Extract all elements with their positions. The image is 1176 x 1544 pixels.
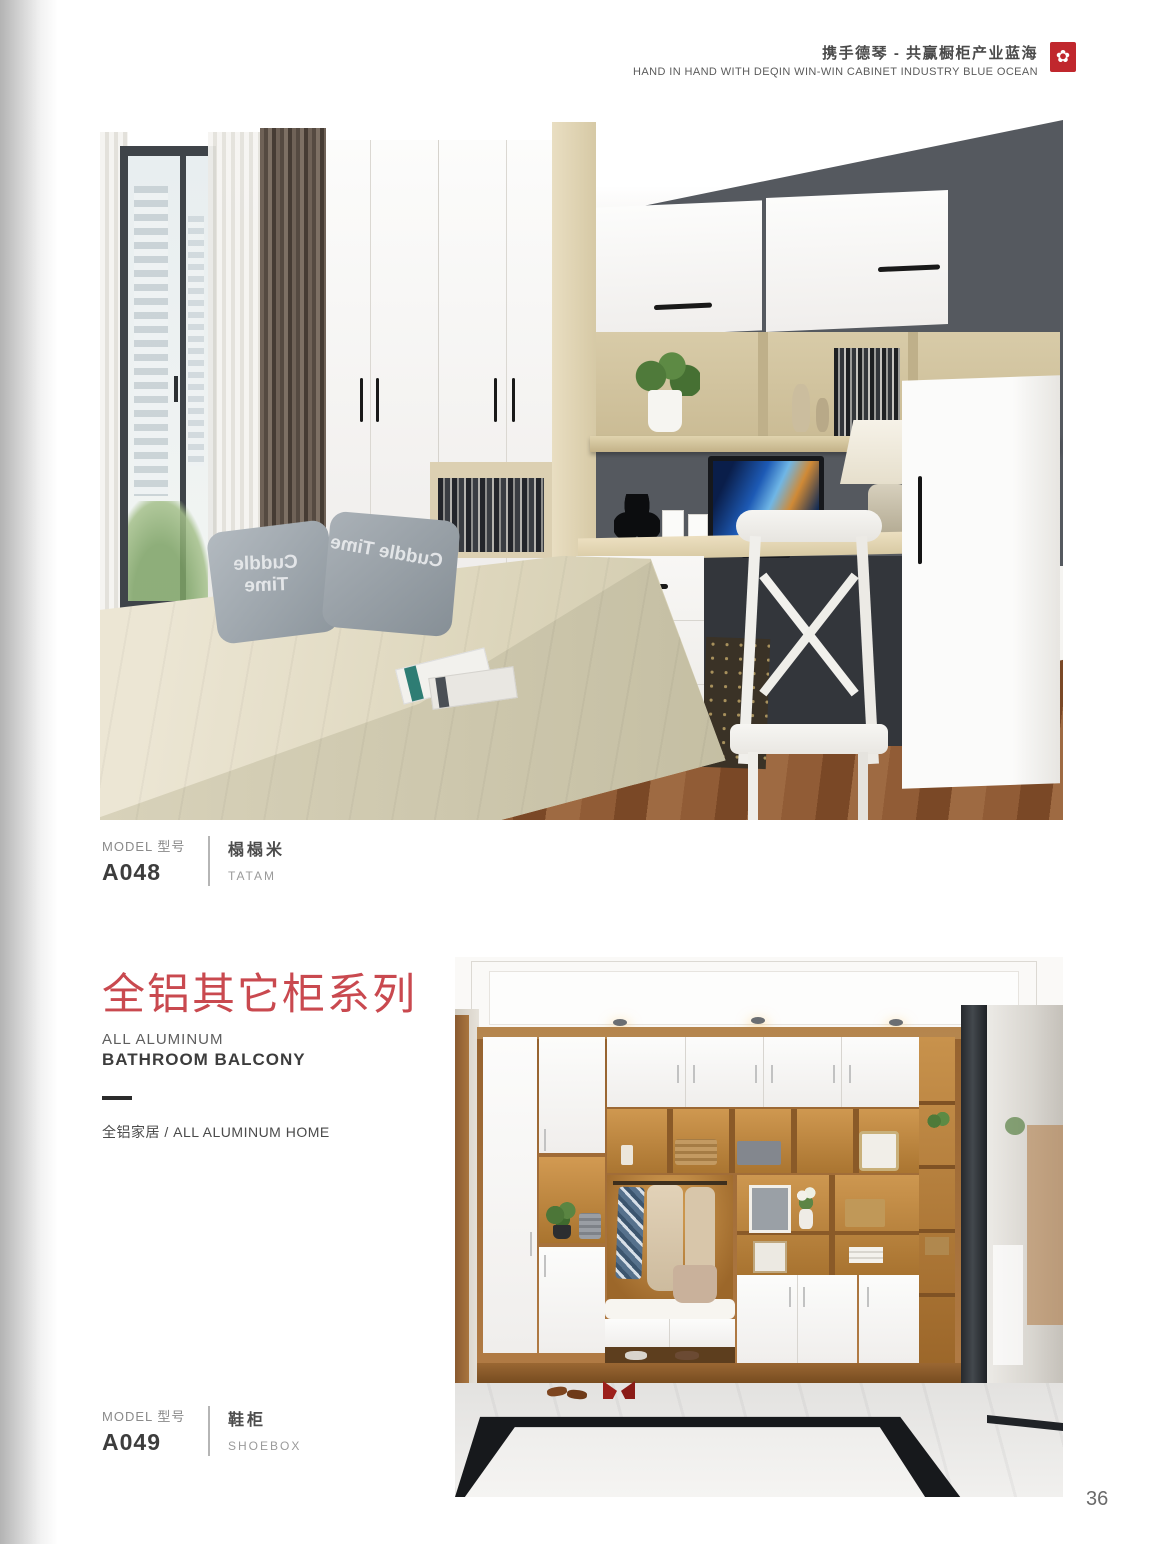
- window-frame: [120, 146, 216, 611]
- door-handle: [544, 1255, 546, 1277]
- far-right-lower-door: [859, 1275, 919, 1363]
- model-name-en: TATAM: [228, 869, 285, 883]
- shelf-divider-h: [919, 1101, 955, 1105]
- pillow: Cuddle Time: [321, 511, 461, 638]
- cubby-row: [607, 1109, 919, 1173]
- model-name-en: SHOEBOX: [228, 1439, 301, 1453]
- door-handle: [803, 1287, 805, 1307]
- door-handle: [867, 1287, 869, 1307]
- base-strip: [477, 1363, 961, 1383]
- slippers: [625, 1351, 647, 1360]
- model-divider: [208, 836, 210, 886]
- pillow-text: Cuddle Time: [327, 532, 446, 574]
- page-spine-gradient: [0, 0, 58, 1544]
- door-seam: [685, 1037, 686, 1107]
- woven-basket: [675, 1139, 717, 1165]
- tall-cabinet: [902, 375, 1060, 789]
- photo-tatami-room: Cuddle Time Cuddle Time: [100, 106, 1063, 820]
- shelf-plant: [545, 1197, 579, 1227]
- shelf-basket: [579, 1213, 601, 1239]
- chair-leg: [748, 752, 758, 820]
- small-box: [925, 1237, 949, 1255]
- bench-cushion: [605, 1299, 735, 1319]
- top-cabinet-left: [596, 200, 762, 337]
- gray-box: [737, 1141, 781, 1165]
- greenery-view: [128, 501, 208, 601]
- upper-door: [539, 1037, 605, 1153]
- buildings-view-2: [188, 216, 204, 466]
- page-number: 36: [1086, 1488, 1108, 1511]
- flower-bouquet: [793, 1183, 819, 1211]
- shelf-divider-h: [919, 1229, 955, 1233]
- lit-shelf: [539, 1157, 605, 1243]
- pillow-text: Cuddle Time: [210, 551, 321, 598]
- door-handle: [789, 1287, 791, 1307]
- downlight: [751, 1017, 765, 1024]
- book-stack: [849, 1247, 883, 1263]
- window-handle: [174, 376, 178, 402]
- section-dash: [102, 1096, 132, 1100]
- vase: [792, 384, 810, 432]
- shelf-divider: [829, 1175, 835, 1275]
- perfume-bottle: [621, 1145, 633, 1165]
- header-tagline-en: HAND IN HAND WITH DEQIN WIN-WIN CABINET …: [633, 66, 1038, 78]
- maple-side-panel: [552, 122, 596, 568]
- shelf-divider-h: [919, 1165, 955, 1169]
- photo-shoebox-entry: [455, 957, 1063, 1497]
- model-code: A048: [102, 859, 202, 886]
- cubby-divider: [667, 1109, 673, 1173]
- brand-logo-icon: ✿: [1050, 42, 1076, 72]
- reflected-plant: [1005, 1117, 1025, 1135]
- downlight: [613, 1019, 627, 1026]
- flower-vase: [799, 1209, 813, 1229]
- pillow: Cuddle Time: [206, 519, 341, 645]
- wardrobe-handle: [360, 378, 363, 422]
- chair-seat: [730, 724, 888, 754]
- door-handle: [693, 1065, 695, 1083]
- header-taglines: 携手德琴 - 共赢橱柜产业蓝海 HAND IN HAND WITH DEQIN …: [633, 42, 1038, 78]
- model-name-zh: 鞋柜: [228, 1406, 301, 1430]
- chair-leg: [858, 752, 868, 820]
- section-title-zh: 全铝其它柜系列: [102, 960, 462, 1022]
- reflected-door: [993, 1245, 1023, 1365]
- section-subtitle-2: BATHROOM BALCONY: [102, 1050, 462, 1070]
- top-cabinet-right: [766, 190, 948, 332]
- cabinet-handle: [918, 476, 922, 564]
- door-handle: [544, 1129, 546, 1151]
- lower-door: [539, 1247, 605, 1353]
- model-label: MODEL 型号: [102, 1406, 202, 1425]
- door-handle: [677, 1065, 679, 1083]
- plant-pot: [648, 390, 682, 432]
- buildings-view: [134, 186, 168, 496]
- door-handle: [849, 1065, 851, 1083]
- reflected-wood: [1027, 1125, 1063, 1325]
- door-seam: [841, 1037, 842, 1107]
- model-block-a048: MODEL 型号 A048 榻榻米 TATAM: [102, 836, 285, 886]
- wardrobe-handle: [494, 378, 497, 422]
- cabinet-wall: [477, 1027, 961, 1383]
- model-name-zh: 榻榻米: [228, 836, 285, 860]
- top-door-row: [607, 1037, 919, 1107]
- window-glass: [128, 156, 208, 601]
- door-handle: [833, 1065, 835, 1083]
- door-handle: [771, 1065, 773, 1083]
- downlight: [889, 1019, 903, 1026]
- small-plant: [923, 1109, 951, 1131]
- door-handle: [755, 1065, 757, 1083]
- model-right: 榻榻米 TATAM: [228, 836, 285, 886]
- far-right-column: [919, 1037, 955, 1363]
- model-right: 鞋柜 SHOEBOX: [228, 1406, 301, 1456]
- tan-box: [845, 1199, 885, 1227]
- section-family-line: 全铝家居 / ALL ALUMINUM HOME: [102, 1122, 462, 1142]
- tall-door: [483, 1037, 537, 1353]
- mirror-reflection: [987, 1005, 1063, 1405]
- section-subtitle-1: ALL ALUMINUM: [102, 1031, 462, 1048]
- wardrobe-seam: [370, 140, 371, 568]
- model-left: MODEL 型号 A049: [102, 1406, 202, 1456]
- vase: [816, 398, 829, 432]
- shoe-slot: [605, 1347, 735, 1363]
- magazine-stripe: [435, 677, 449, 708]
- desk-chair: [728, 510, 890, 820]
- cabinet-handle: [654, 303, 712, 311]
- drawer-seam: [669, 1319, 670, 1347]
- right-lower-doors: [737, 1275, 857, 1363]
- left-door-frame: [455, 1015, 469, 1383]
- model-block-a049: MODEL 型号 A049 鞋柜 SHOEBOX: [102, 1406, 301, 1456]
- clock: [859, 1131, 899, 1171]
- cabinet-handle: [878, 264, 940, 272]
- cubby-divider: [791, 1109, 797, 1173]
- model-label: MODEL 型号: [102, 836, 202, 855]
- shoes-pair: [675, 1351, 699, 1360]
- plant-leaves: [630, 346, 700, 396]
- model-code: A049: [102, 1429, 202, 1456]
- header-tagline-zh: 携手德琴 - 共赢橱柜产业蓝海: [633, 42, 1038, 63]
- magazine-stripe: [404, 666, 424, 702]
- bench-drawers: [605, 1319, 735, 1347]
- door-seam: [797, 1275, 798, 1363]
- shelf-divider: [758, 332, 768, 442]
- handbag: [673, 1265, 717, 1303]
- model-left: MODEL 型号 A048: [102, 836, 202, 886]
- mirror-column: [961, 1005, 987, 1405]
- wardrobe-handle: [512, 378, 515, 422]
- section-heading: 全铝其它柜系列 ALL ALUMINUM BATHROOM BALCONY 全铝…: [102, 960, 462, 1142]
- page-header: 携手德琴 - 共赢橱柜产业蓝海 HAND IN HAND WITH DEQIN …: [633, 42, 1076, 78]
- cubby-divider: [729, 1109, 735, 1173]
- model-divider: [208, 1406, 210, 1456]
- wardrobe-handle: [376, 378, 379, 422]
- plaid-scarf: [615, 1187, 644, 1280]
- catalog-page: 携手德琴 - 共赢橱柜产业蓝海 HAND IN HAND WITH DEQIN …: [0, 0, 1176, 1544]
- shelf-divider-h: [919, 1293, 955, 1297]
- door-seam: [763, 1037, 764, 1107]
- right-shelves: [737, 1175, 919, 1275]
- shelf-pot: [553, 1225, 571, 1239]
- art-frame: [753, 1241, 787, 1273]
- art-frame: [749, 1185, 791, 1233]
- door-handle: [530, 1232, 532, 1256]
